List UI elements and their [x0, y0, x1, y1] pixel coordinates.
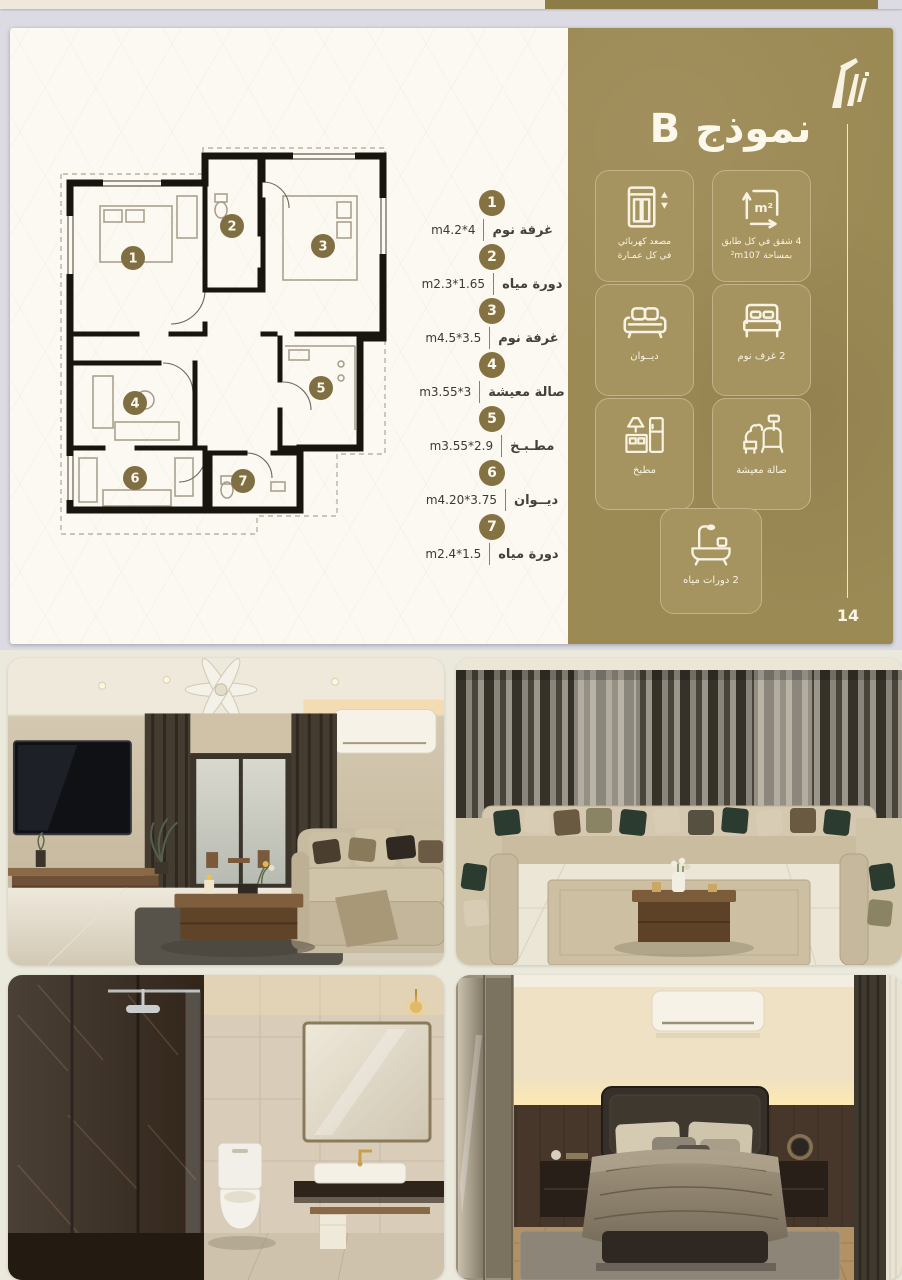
legend-number-badge: 2: [479, 244, 505, 270]
room-dimensions: m4.5*3.5: [425, 331, 481, 345]
background-gap: [878, 0, 902, 9]
floor-plan: 1 2 3 4 5 6 7: [45, 138, 390, 553]
legend-number-badge: 5: [479, 406, 505, 432]
model-title: نموذج B: [568, 106, 893, 152]
brochure-page: 1 2 3 4 5 6 7 1 غرفة نومm4.2*4 2 دورة مي…: [0, 0, 902, 1280]
room-number-5: 5: [316, 382, 325, 397]
living-room-icon: [735, 408, 789, 462]
room-name: غرفة نوم: [498, 331, 558, 346]
feature-label: 2 دورات مياه: [683, 574, 739, 589]
feature-card-bathrooms: 2 دورات مياه: [660, 508, 762, 614]
room-name: دورة مياه: [502, 277, 562, 292]
room-number-3: 3: [318, 240, 327, 255]
legend-item: 5 مطـبـخm3.55*2.9: [406, 406, 578, 460]
feature-card-living: صالة معيشة: [712, 398, 811, 510]
legend-item: 3 غرفة نومm4.5*3.5: [406, 298, 578, 352]
feature-label: مطبخ: [633, 464, 656, 479]
legend-item: 6 ديــوانm4.20*3.75: [406, 460, 578, 514]
sofa-icon: [618, 294, 672, 348]
feature-card-bedrooms: 2 غرف نوم: [712, 284, 811, 396]
feature-card-elevator: مصعد كهربائي في كل عمـارة: [595, 170, 694, 282]
legend-number-badge: 6: [479, 460, 505, 486]
room-name: غرفة نوم: [492, 223, 552, 238]
room-number-4: 4: [130, 397, 139, 412]
legend-item: 2 دورة مياهm2.3*1.65: [406, 244, 578, 298]
svg-text:m²: m²: [754, 200, 773, 215]
divider: [501, 435, 502, 457]
divider: [505, 489, 506, 511]
room-name: دورة مياه: [498, 547, 558, 562]
legend-number-badge: 3: [479, 298, 505, 324]
room-number-7: 7: [238, 475, 247, 490]
room-dimensions: m4.20*3.75: [426, 493, 497, 507]
feature-label: ديــوان: [630, 350, 658, 365]
divider: [489, 327, 490, 349]
photo-living-room: [8, 658, 444, 965]
divider: [493, 273, 494, 295]
room-number-2: 2: [227, 220, 236, 235]
legend-number-badge: 7: [479, 514, 505, 540]
room-dimensions: m3.55*3: [419, 385, 471, 399]
room-dimensions: m2.3*1.65: [422, 277, 486, 291]
divider: [479, 381, 480, 403]
bathroom-illustration: [8, 975, 444, 1280]
legend-item: 7 دورة مياهm2.4*1.5: [406, 514, 578, 568]
vertical-rule: [847, 124, 848, 598]
previous-page-gold-edge: [545, 0, 878, 9]
living-room-illustration: [8, 658, 444, 965]
elevator-icon: [618, 180, 672, 234]
photo-bathroom: [8, 975, 444, 1280]
room-number-1: 1: [128, 252, 137, 267]
legend-number-badge: 4: [479, 352, 505, 378]
feature-card-kitchen: مطبخ: [595, 398, 694, 510]
room-name: صالة معيشة: [488, 385, 565, 400]
legend-number-badge: 1: [479, 190, 505, 216]
model-info-panel: نموذج B مصعد كهربائي: [568, 28, 893, 644]
floorplan-card: 1 2 3 4 5 6 7 1 غرفة نومm4.2*4 2 دورة مي…: [10, 28, 893, 644]
kitchen-icon: [618, 408, 672, 462]
feature-label: 2 غرف نوم: [738, 350, 786, 365]
page-number: 14: [827, 606, 869, 625]
bedroom-illustration: [456, 975, 902, 1280]
legend-item: 4 صالة معيشةm3.55*3: [406, 352, 578, 406]
room-dimensions: m4.2*4: [431, 223, 475, 237]
feature-card-area: m² 4 شقق في كل طابق بمساحة ²m107: [712, 170, 811, 282]
room-dimensions: m2.4*1.5: [425, 547, 481, 561]
room-legend: 1 غرفة نومm4.2*4 2 دورة مياهm2.3*1.65 3 …: [406, 190, 578, 568]
room-dimensions: m3.55*2.9: [430, 439, 494, 453]
majlis-illustration: [456, 658, 902, 965]
bed-icon: [735, 294, 789, 348]
feature-label: 4 شقق في كل طابق بمساحة ²m107: [722, 236, 802, 263]
room-name: ديــوان: [514, 493, 558, 508]
area-m2-icon: m²: [735, 180, 789, 234]
previous-page-edge: [0, 0, 902, 9]
photo-bedroom: [456, 975, 902, 1280]
divider: [489, 543, 490, 565]
bathtub-icon: [684, 518, 738, 572]
feature-label: مصعد كهربائي في كل عمـارة: [618, 236, 672, 263]
photo-majlis: [456, 658, 902, 965]
divider: [483, 219, 484, 241]
legend-item: 1 غرفة نومm4.2*4: [406, 190, 578, 244]
room-number-6: 6: [130, 472, 139, 487]
feature-card-diwan: ديــوان: [595, 284, 694, 396]
feature-label: صالة معيشة: [736, 464, 787, 479]
room-name: مطـبـخ: [510, 439, 554, 454]
